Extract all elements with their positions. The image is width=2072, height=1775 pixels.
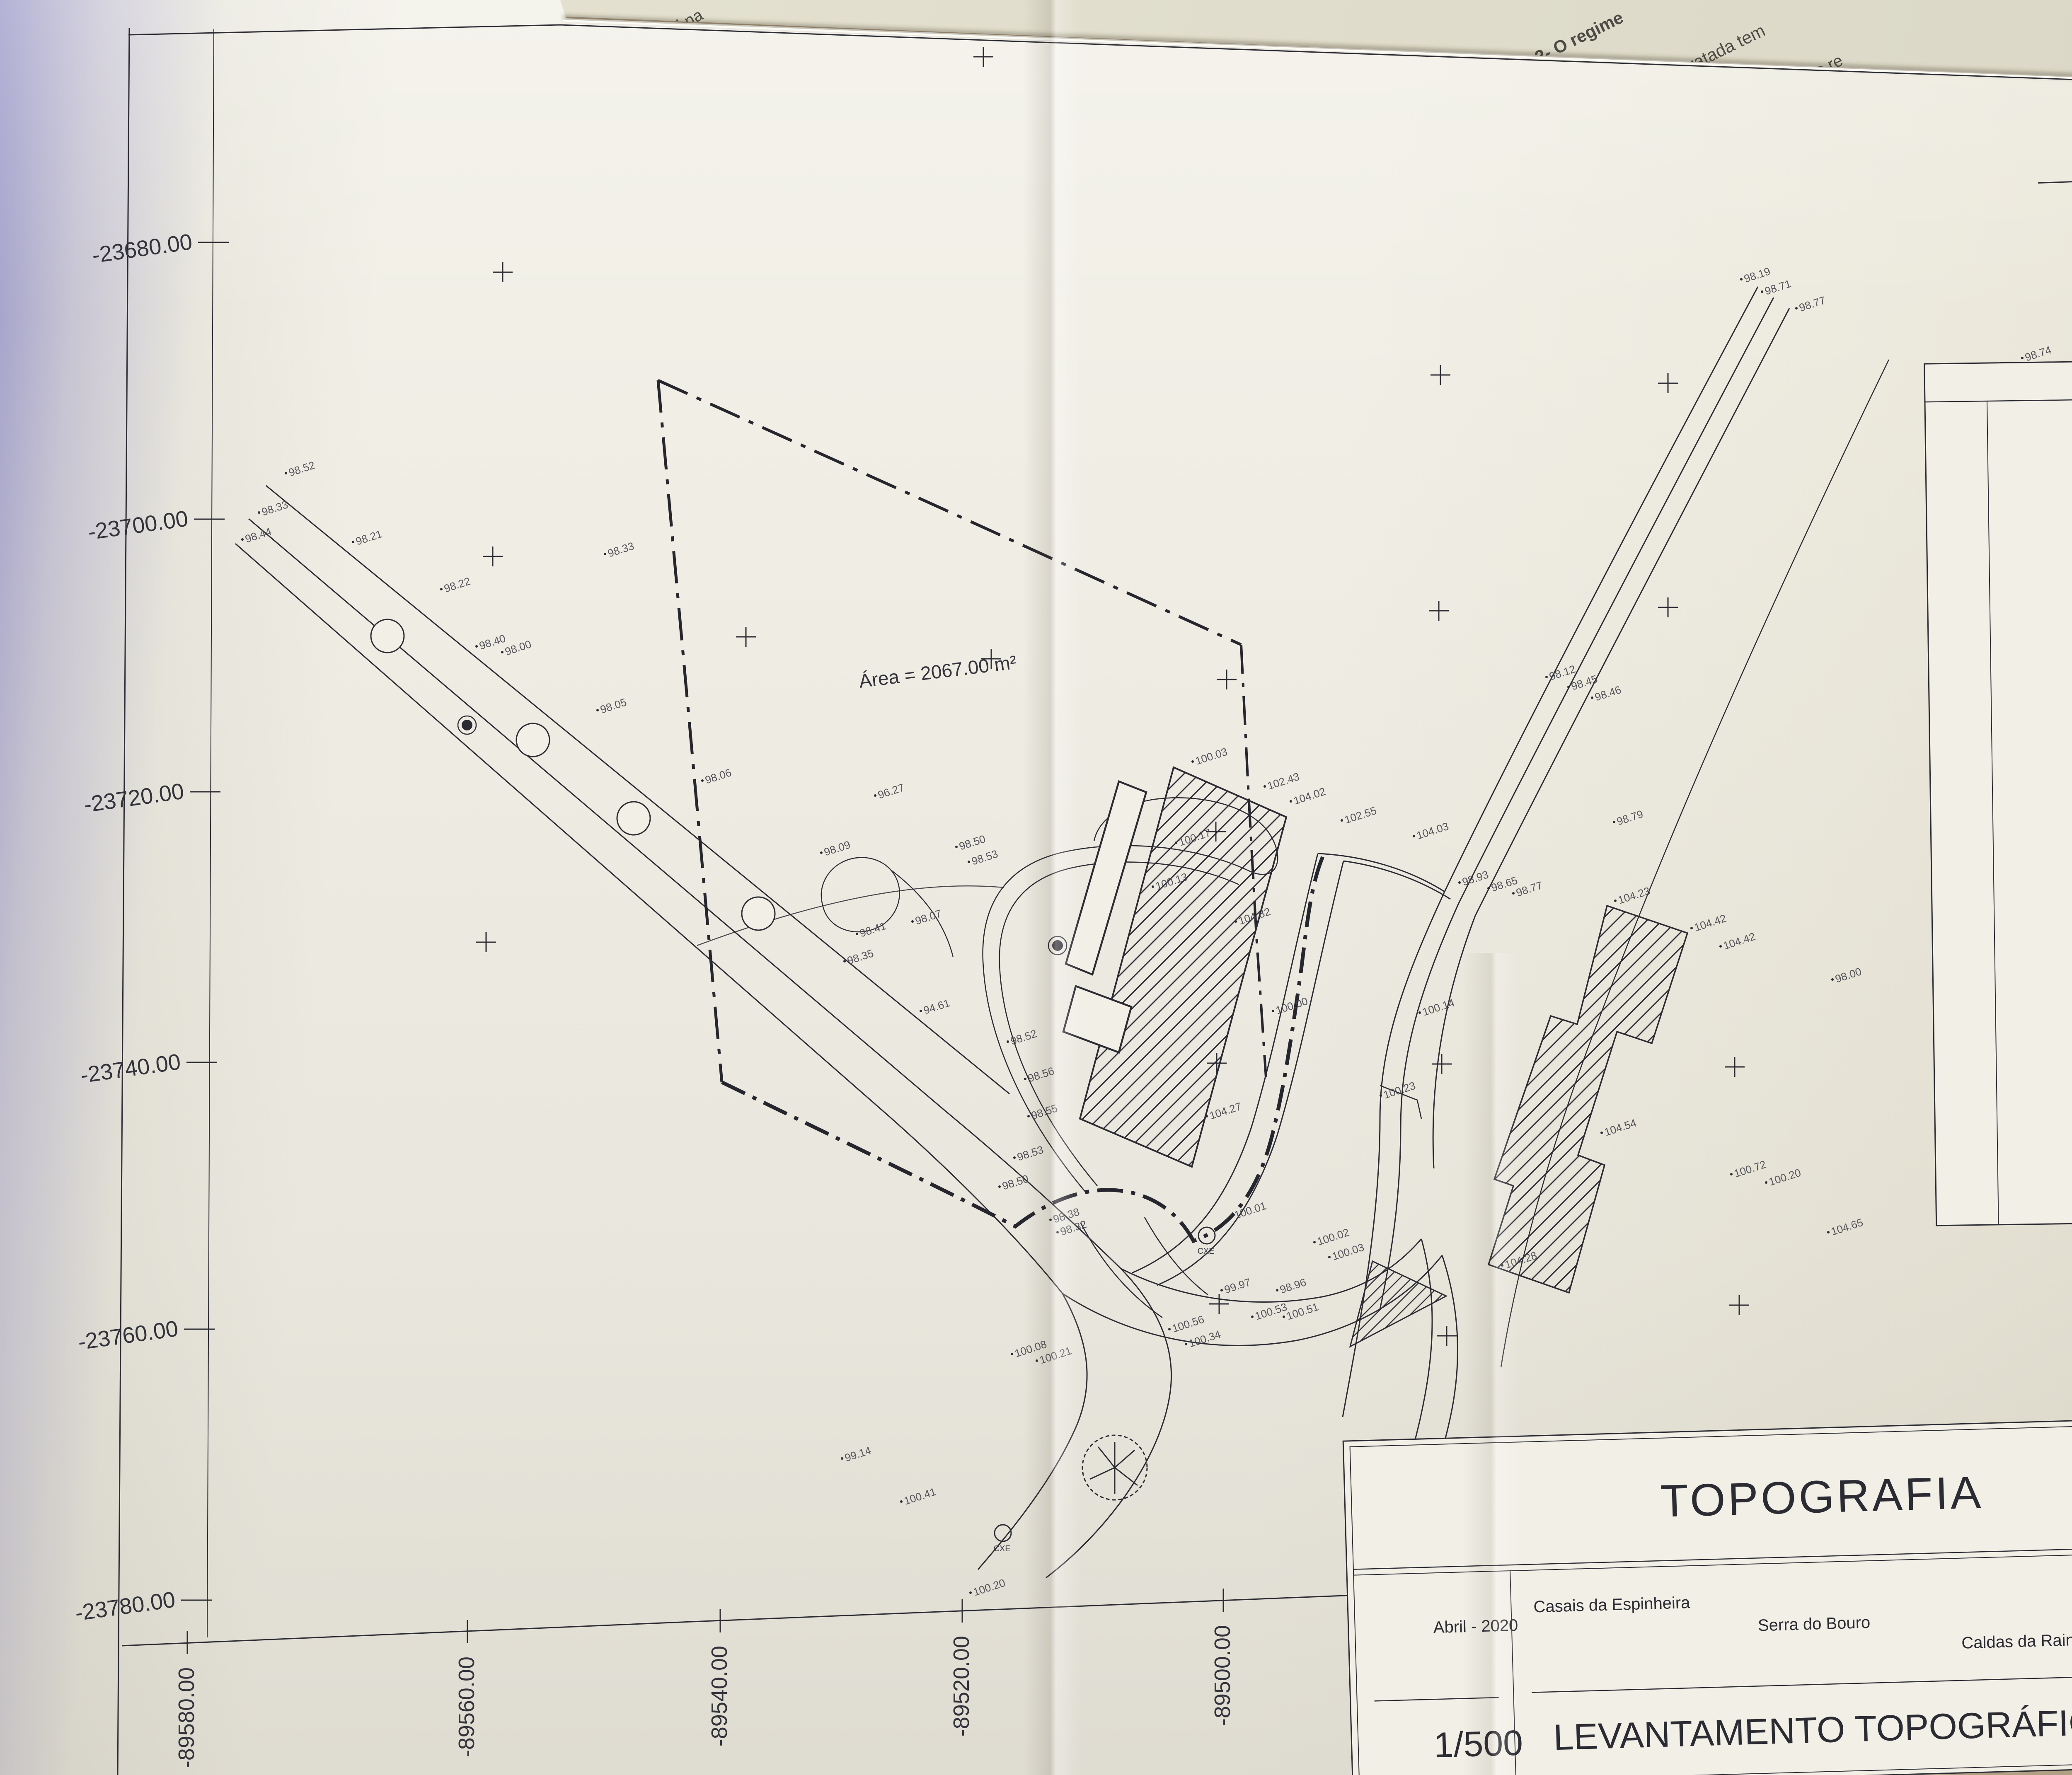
spot-elevation-dot (1290, 800, 1292, 803)
spot-elevation-label: 99.97 (1223, 1276, 1252, 1296)
spot-elevation-dot (841, 1457, 843, 1460)
grid-label-y: -23680.00 (90, 229, 194, 268)
spot-elevation-label: 98.33 (606, 539, 636, 560)
spot-elevation-label: 104.65 (1830, 1216, 1865, 1238)
spot-elevation-label: 98.74 (2024, 343, 2053, 364)
spot-elevation-dot (1730, 1173, 1733, 1175)
spot-elevation-label: 100.56 (1171, 1313, 1206, 1335)
spot-elevation-dot (1024, 1078, 1026, 1080)
spot-elevation-dot (1761, 290, 1763, 293)
spot-elevation-dot (1831, 978, 1834, 981)
spot-elevation-label: 98.00 (1834, 965, 1863, 985)
spot-elevation-dot (604, 553, 606, 555)
spot-elevation-dot (1827, 1231, 1830, 1233)
grid-cross (1429, 601, 1449, 621)
spot-elevation-dot (843, 960, 846, 962)
spot-elevation-label: 96.27 (876, 781, 906, 801)
spot-elevation-dot (1380, 1094, 1382, 1097)
grid-label-y: -23780.00 (73, 1587, 177, 1625)
grid-label-y: -23700.00 (86, 506, 189, 544)
grid-label-x: -89560.00 (454, 1657, 479, 1757)
grid-cross (1729, 1295, 1749, 1315)
grid-labels: -23680.00-23700.00-23720.00-23740.00-237… (73, 229, 1235, 1768)
caixa-tag: CXE (1197, 1247, 1214, 1256)
spot-elevation-dot (1600, 1132, 1603, 1134)
spot-elevation-dot (856, 933, 858, 935)
map-symbols: CXECXE (458, 363, 2061, 1553)
spot-elevation-label: 104.27 (1208, 1100, 1243, 1122)
spot-elevation-label: 98.22 (443, 575, 472, 595)
spot-elevation-dot (1413, 835, 1415, 837)
spot-elevation-dot (1205, 1115, 1208, 1117)
spot-elevation-dot (285, 472, 287, 474)
spot-elevation-dot (1591, 696, 1593, 699)
spot-elevation-label: 98.79 (1615, 808, 1645, 828)
caixa-tag: CXE (993, 1544, 1010, 1553)
spot-elevation-label: 100.72 (1733, 1158, 1768, 1180)
spot-elevation-label: 100.20 (972, 1577, 1007, 1598)
spot-elevation-label: 100.41 (903, 1485, 938, 1507)
spot-elevation-dot (1011, 1353, 1013, 1355)
spot-elevation-label: 104.42 (1693, 912, 1728, 934)
spot-elevation-dot (1283, 1316, 1285, 1318)
spot-elevation-label: 98.44 (244, 525, 273, 545)
grid-label-y: -23760.00 (76, 1316, 179, 1354)
spot-elevation-dot (1740, 278, 1743, 281)
grid-cross (1209, 1294, 1229, 1314)
title-block-title: TOPOGRAFIA (1660, 1467, 1984, 1527)
spot-elevation-label: 98.40 (478, 632, 507, 652)
grid-cross (476, 932, 496, 952)
spot-elevation-label: 98.55 (1030, 1102, 1059, 1122)
spot-elevation-label: 98.07 (914, 907, 943, 927)
title-block-date: Abril - 2020 (1433, 1616, 1518, 1637)
second-building-hatched (1489, 906, 1687, 1293)
spot-elevation-dot (911, 920, 914, 923)
spot-elevation-label: 100.02 (1316, 1226, 1351, 1248)
spot-elevation-dot (241, 538, 244, 541)
spot-elevation-dot (1458, 881, 1461, 884)
spot-elevation-label: 98.06 (704, 766, 733, 786)
spot-elevation-dot (955, 846, 958, 848)
spot-elevation-dot (1027, 1115, 1030, 1117)
spot-elevation-label: 98.19 (1743, 265, 1772, 285)
spot-elevation-label: 100.01 (1233, 1199, 1268, 1221)
spot-elevation-label: 100.53 (1254, 1301, 1289, 1323)
spot-elevation-label: 98.35 (846, 947, 875, 967)
spot-elevation-dot (1230, 1214, 1233, 1217)
spot-elevation-label: 98.53 (970, 847, 1000, 868)
spot-elevation-label: 100.03 (1194, 745, 1229, 767)
legend-box: SIMBOLOGIA (1924, 359, 2072, 1226)
spot-elevation-label: 100.20 (1767, 1166, 1803, 1188)
spot-elevation-label: 98.77 (1798, 294, 1827, 314)
spot-elevation-dot (1501, 1264, 1503, 1267)
spot-elevation-dot (1191, 760, 1194, 763)
spot-elevation-label: 98.46 (1593, 683, 1623, 704)
spot-elevation-dot (701, 779, 704, 782)
grid-label-y: -23720.00 (82, 779, 185, 817)
spot-elevation-label: 104.03 (1415, 820, 1450, 842)
grid-cross (736, 627, 756, 647)
spot-elevation-dot (258, 511, 260, 514)
spot-elevation-dot (920, 1010, 922, 1012)
spot-elevation-label: 100.00 (1274, 995, 1310, 1017)
coordinate-grid (207, 29, 214, 1637)
spot-elevation-label: 104.42 (1722, 930, 1757, 952)
spot-elevation-dot (1220, 1289, 1223, 1291)
spot-elevation-dot (1567, 686, 1570, 688)
spot-elevation-dot (1487, 887, 1490, 890)
spot-elevation-label: 98.41 (858, 919, 888, 940)
spot-elevation-dot (820, 851, 823, 854)
spot-elevation-label: 104.54 (1603, 1117, 1638, 1139)
spot-elevation-dot (968, 861, 970, 863)
spot-elevation-dot (1056, 1231, 1059, 1233)
grid-label-y: -23740.00 (79, 1049, 182, 1088)
spot-elevation-dot (1049, 1219, 1052, 1221)
spot-elevation-dot (1690, 927, 1693, 929)
spot-elevation-label: 102.43 (1266, 770, 1301, 792)
grid-cross (1725, 1057, 1745, 1077)
spot-elevation-label: 98.33 (260, 498, 290, 518)
spot-elevation-dot (2021, 357, 2024, 359)
spot-elevation-dot (440, 588, 443, 590)
title-block: TOPOGRAFIA Abril - 2020 1/500 Casais da … (1343, 1415, 2072, 1775)
spot-elevation-dot (1007, 1040, 1009, 1043)
spot-elevation-dot (1264, 785, 1266, 788)
spot-elevation-dot (1313, 1241, 1316, 1243)
spot-elevation-label: 98.09 (823, 838, 852, 858)
grid-cross (1217, 670, 1237, 689)
spot-elevation-dot (1272, 1010, 1274, 1012)
spot-elevation-dot (501, 651, 503, 653)
spot-elevation-dot (1341, 819, 1343, 822)
spot-elevation-label: 98.45 (1570, 672, 1599, 693)
grid-cross (493, 262, 513, 282)
grid-cross (1658, 373, 1678, 393)
spot-elevation-dot (1276, 1289, 1278, 1291)
spot-elevation-dot (874, 794, 876, 797)
spot-elevation-dot (998, 1185, 1001, 1188)
tree-symbol (1082, 1435, 1147, 1500)
spot-elevation-dot (1185, 1343, 1187, 1345)
spot-elevation-dot (1168, 1328, 1171, 1330)
grid-label-x: -89500.00 (1210, 1625, 1235, 1726)
spot-elevation-dot (1795, 307, 1798, 310)
estacao-icon (1052, 940, 1063, 951)
spot-elevation-label: 98.71 (1763, 277, 1793, 297)
spot-elevation-label: 98.53 (1016, 1143, 1045, 1163)
grid-cross (483, 547, 503, 566)
spot-elevation-label: 98.96 (1278, 1276, 1308, 1296)
spot-elevation-dot (969, 1591, 972, 1594)
spot-elevation-dot (1719, 945, 1722, 948)
spot-elevation-dot (900, 1500, 903, 1503)
spot-elevation-dot (596, 709, 599, 711)
spot-elevation-label: 98.56 (1026, 1064, 1056, 1085)
spot-elevation-label: 98.50 (1001, 1172, 1030, 1192)
spot-elevation-dot (352, 541, 354, 543)
spot-elevation-label: 98.52 (287, 459, 317, 479)
north-arrow: NORTE (2033, 44, 2072, 314)
spot-elevation-dot (1013, 1156, 1016, 1159)
spot-elevation-dot (1765, 1181, 1767, 1184)
spot-elevation-label: 94.61 (922, 996, 951, 1017)
grid-cross (1437, 1326, 1457, 1346)
spot-elevation-dot (475, 645, 478, 648)
spot-elevation-label: 98.21 (354, 527, 384, 548)
spot-elevation-label: 98.77 (1515, 879, 1544, 899)
spot-elevation-dot (1328, 1256, 1331, 1258)
spot-elevation-dot (1152, 885, 1154, 888)
spot-elevation-label: 100.51 (1285, 1301, 1320, 1323)
photo-scene: social naAdrião, Odivelas15362107, matri… (0, 0, 2072, 1775)
grid-label-x: -89520.00 (949, 1636, 974, 1736)
spot-elevation-label: 98.52 (1009, 1027, 1038, 1047)
spot-elevation-dot (1545, 676, 1548, 678)
spot-elevation-dot (1036, 1359, 1038, 1362)
spot-elevation-label: 98.00 (503, 638, 533, 658)
area-label: Área = 2067.00 m² (858, 651, 1018, 692)
spot-elevation-dot (1613, 821, 1615, 823)
spot-elevation-label: 98.50 (958, 832, 987, 853)
estacao-icon (462, 720, 472, 730)
grid-cross (1431, 365, 1450, 385)
spot-elevation-dot (1614, 900, 1617, 902)
grid-cross (973, 47, 993, 67)
spot-elevation-label: 100.03 (1331, 1241, 1366, 1263)
spot-elevation-dot (1512, 892, 1515, 895)
grid-label-x: -89540.00 (707, 1646, 732, 1746)
grid-cross (1658, 597, 1678, 617)
spot-elevation-dot (1175, 842, 1177, 844)
title-block-scale: 1/500 (1433, 1723, 1523, 1765)
spot-elevation-dot (1251, 1316, 1254, 1318)
spot-elevation-label: 98.65 (1490, 874, 1519, 894)
grid-cross (1432, 1054, 1452, 1074)
spot-elevation-dot (1234, 920, 1237, 923)
spot-elevation-label: 102.55 (1343, 804, 1378, 826)
spot-elevation-label: 104.02 (1292, 785, 1327, 807)
survey-drawing: -23680.00-23700.00-23720.00-23740.00-237… (0, 0, 2072, 1775)
spot-elevation-dot (1418, 1011, 1421, 1014)
spot-elevation-label: 100.14 (1421, 996, 1456, 1018)
spot-elevation-label: 99.14 (843, 1444, 873, 1464)
spot-elevation-label: 100.34 (1187, 1328, 1222, 1350)
title-block-place3: Caldas da Rainha (1961, 1630, 2072, 1652)
grid-label-x: -89580.00 (174, 1667, 199, 1768)
spot-elevation-label: 104.23 (1617, 885, 1652, 907)
title-block-place2: Serra do Bouro (1757, 1613, 1870, 1635)
spot-elevation-label: 98.05 (599, 696, 628, 716)
